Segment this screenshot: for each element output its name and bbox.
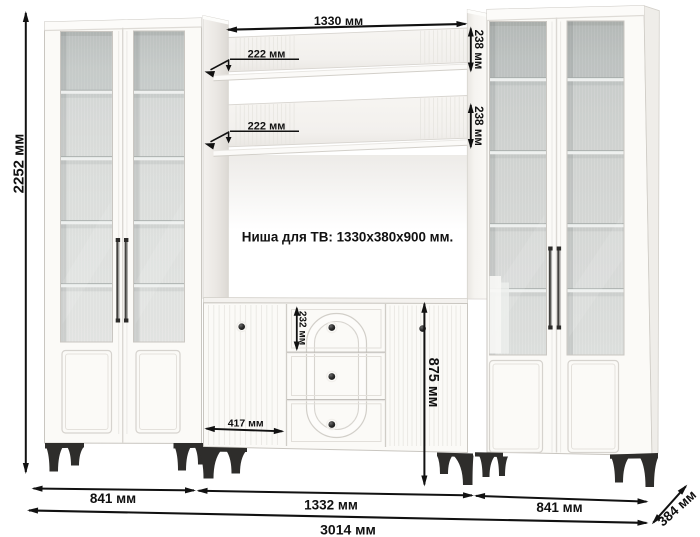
- svg-text:1332 мм: 1332 мм: [304, 498, 358, 513]
- svg-text:222 мм: 222 мм: [248, 48, 286, 60]
- svg-text:238 мм: 238 мм: [472, 30, 485, 70]
- svg-text:417 мм: 417 мм: [228, 417, 264, 429]
- svg-text:841 мм: 841 мм: [536, 500, 582, 515]
- svg-text:875 мм: 875 мм: [425, 358, 441, 408]
- svg-text:238 мм: 238 мм: [472, 106, 485, 146]
- svg-text:2252 мм: 2252 мм: [11, 134, 28, 194]
- svg-text:1330 мм: 1330 мм: [314, 14, 363, 28]
- svg-text:Ниша для ТВ: 1330x380x900 мм.: Ниша для ТВ: 1330x380x900 мм.: [242, 230, 453, 245]
- svg-text:841 мм: 841 мм: [90, 491, 136, 506]
- svg-text:232 мм: 232 мм: [297, 311, 308, 345]
- svg-text:222 мм: 222 мм: [248, 120, 286, 132]
- svg-text:3014 мм: 3014 мм: [320, 522, 376, 537]
